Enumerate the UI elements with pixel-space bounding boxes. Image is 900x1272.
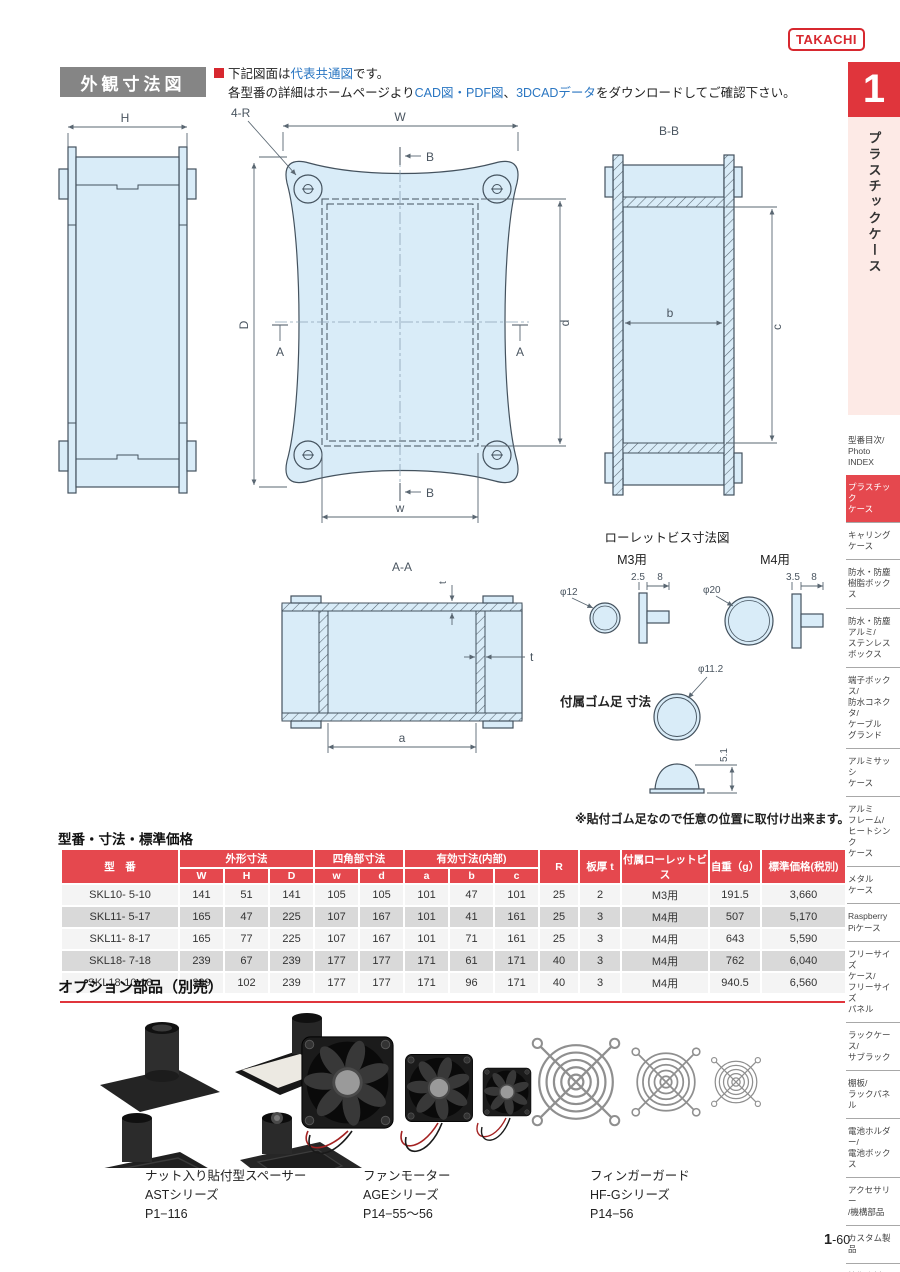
spec-value-cell: 6,560: [761, 972, 846, 994]
spec-model-cell: SKL11- 5-17: [61, 906, 179, 928]
spec-value-cell: 171: [404, 950, 449, 972]
spec-value-cell: M4用: [621, 950, 709, 972]
corner-radius-label: 4-R: [231, 106, 251, 120]
m4-diameter-label: φ20: [703, 585, 721, 596]
page-number-rest: -60: [832, 1233, 850, 1247]
sidebar-item: フリーサイズ ケース/ フリーサイズ パネル: [846, 941, 900, 1022]
col-sub-D: D: [269, 868, 314, 884]
sidebar-item: アルミ フレーム/ ヒートシンク ケース: [846, 796, 900, 866]
spec-value-cell: 165: [179, 906, 224, 928]
header-note-line1: 下記図面は代表共通図です。: [214, 63, 389, 82]
spec-value-cell: 507: [709, 906, 761, 928]
section-bb-diagram: B-B b c: [605, 124, 784, 495]
col-weight: 自重（g）: [709, 849, 761, 884]
rubber-foot-diagram: 付属ゴム足 寸法 φ11.2 5.1: [560, 664, 737, 793]
spec-value-cell: 3: [579, 972, 621, 994]
spec-value-cell: 3: [579, 950, 621, 972]
spec-value-cell: 51: [224, 884, 269, 906]
col-sub-b: b: [449, 868, 494, 884]
dim-h-label: H: [121, 111, 130, 125]
spec-value-cell: M4用: [621, 972, 709, 994]
sidebar-item: カスタム製品: [846, 1225, 900, 1262]
options-divider: [60, 1001, 845, 1003]
spec-value-cell: 101: [404, 928, 449, 950]
m3-dim1-label: 2.5: [631, 572, 645, 583]
spec-model-cell: SKL10- 5-10: [61, 884, 179, 906]
finger-guards-image: [533, 1039, 761, 1125]
spec-value-cell: 6,040: [761, 950, 846, 972]
option-page-ref: P14−56: [590, 1205, 690, 1224]
col-radius: R: [539, 849, 579, 884]
knurled-screw-diagram: ローレットビス寸法図 M3用 M4用 φ12 2.5 8 φ20: [560, 531, 823, 648]
dim-d-label: d: [558, 320, 572, 327]
spec-value-cell: 940.5: [709, 972, 761, 994]
dim-c-label: c: [770, 324, 784, 330]
note1-em: 代表共通図: [291, 67, 354, 81]
category-strip-label: プラスチックケース: [865, 131, 884, 415]
col-screw: 付属ローレットビス: [621, 849, 709, 884]
logo-text: TAKACHI: [796, 32, 857, 47]
sidebar-item: アクセサリー /機構部品: [846, 1177, 900, 1225]
dim-b-label: b: [667, 306, 674, 320]
screw-diagram-title: ローレットビス寸法図: [604, 531, 729, 545]
spec-value-cell: 141: [179, 884, 224, 906]
spec-value-cell: M4用: [621, 906, 709, 928]
spec-value-cell: 239: [269, 972, 314, 994]
spec-row: SKL18- 7-182396723917717717161171403M4用7…: [61, 950, 846, 972]
spec-model-cell: SKL18- 7-18: [61, 950, 179, 972]
sidebar-item: 棚板/ ラックパネル: [846, 1070, 900, 1118]
sidebar-item: アルミサッシ ケース: [846, 748, 900, 796]
spec-value-cell: 177: [314, 972, 359, 994]
note1-post: です。: [353, 67, 389, 81]
spec-table: 型 番 外形寸法 四角部寸法 有効寸法(内部) R 板厚 t 付属ローレットビス…: [60, 848, 847, 995]
option-caption-spacer: ナット入り貼付型スペーサー ASTシリーズ P1−116: [145, 1167, 306, 1223]
spec-value-cell: 177: [359, 972, 404, 994]
spec-value-cell: 171: [404, 972, 449, 994]
section-bb-title: B-B: [659, 124, 679, 138]
fan-motors-image: [302, 1037, 531, 1153]
spec-value-cell: 225: [269, 928, 314, 950]
m3-diameter-label: φ12: [560, 587, 578, 598]
m3-label: M3用: [617, 553, 647, 567]
col-model: 型 番: [61, 849, 179, 884]
spec-row: SKL10- 5-101415114110510510147101252M3用1…: [61, 884, 846, 906]
option-page-ref: P1−116: [145, 1205, 306, 1224]
note2-post: をダウンロードしてご確認下さい。: [596, 86, 796, 100]
m3-dim2-label: 8: [657, 572, 663, 583]
col-sub-w: w: [314, 868, 359, 884]
option-name: フィンガーガード: [590, 1167, 690, 1186]
spec-row: SKL11- 5-171654722510716710141161253M4用5…: [61, 906, 846, 928]
spec-value-cell: 161: [494, 928, 539, 950]
note2-em1: CAD図・PDF図: [415, 86, 504, 100]
section-aa-diagram: A-A t t a: [282, 560, 534, 753]
spec-value-cell: 3: [579, 906, 621, 928]
spec-value-cell: 101: [404, 906, 449, 928]
red-square-bullet-icon: [214, 68, 224, 78]
spec-value-cell: 107: [314, 906, 359, 928]
col-sub-H: H: [224, 868, 269, 884]
col-outer-dims: 外形寸法: [179, 849, 314, 868]
option-series: HF-Gシリーズ: [590, 1186, 690, 1205]
spec-value-cell: 105: [359, 884, 404, 906]
option-name: ファンモーター: [363, 1167, 451, 1186]
page-number: 1-60: [824, 1232, 850, 1248]
rubber-foot-note: ※貼付ゴム足なので任意の位置に取付け出来ます。: [575, 810, 849, 827]
dim-W-label: W: [394, 110, 406, 124]
spec-value-cell: 25: [539, 884, 579, 906]
option-caption-fan: ファンモーター AGEシリーズ P14−55〜56: [363, 1167, 451, 1223]
spec-value-cell: 107: [314, 928, 359, 950]
spec-value-cell: 171: [494, 950, 539, 972]
option-name: ナット入り貼付型スペーサー: [145, 1167, 306, 1186]
sidebar-item: 型番目次/ Photo INDEX: [846, 428, 900, 475]
spec-row: SKL11- 8-171657722510716710171161253M4用6…: [61, 928, 846, 950]
m4-label: M4用: [760, 553, 790, 567]
col-sub-W: W: [179, 868, 224, 884]
category-strip: プラスチックケース: [848, 117, 900, 415]
sidebar-item: 防水・防塵 アルミ/ ステンレス ボックス: [846, 608, 900, 667]
header-note-line2: 各型番の詳細はホームページよりCAD図・PDF図、3DCADデータをダウンロード…: [228, 82, 796, 101]
spec-value-cell: 171: [494, 972, 539, 994]
col-sub-d: d: [359, 868, 404, 884]
spec-value-cell: 5,590: [761, 928, 846, 950]
spec-value-cell: 61: [449, 950, 494, 972]
spec-value-cell: 40: [539, 972, 579, 994]
col-thickness: 板厚 t: [579, 849, 621, 884]
option-page-ref: P14−55〜56: [363, 1205, 451, 1224]
spec-value-cell: 141: [269, 884, 314, 906]
section-mark-a-left: A: [276, 345, 284, 359]
note2-em2: 3DCADデータ: [516, 86, 596, 100]
options-title: オプション部品（別売）: [58, 976, 223, 997]
section-mark-b-top: B: [426, 150, 434, 164]
spec-value-cell: 177: [359, 950, 404, 972]
section-mark-b-bottom: B: [426, 486, 434, 500]
section-aa-title: A-A: [392, 560, 412, 574]
table-caption: 型番・寸法・標準価格: [58, 828, 193, 848]
option-product-images: [60, 1008, 845, 1168]
spec-value-cell: M4用: [621, 928, 709, 950]
option-series: ASTシリーズ: [145, 1186, 306, 1205]
spec-value-cell: 96: [449, 972, 494, 994]
sidebar-item: プラスチック ケース: [846, 475, 900, 522]
sidebar-item: メタル ケース: [846, 866, 900, 903]
spec-value-cell: 177: [314, 950, 359, 972]
sidebar-item: 技術資料/ 各種ご案内: [846, 1263, 900, 1272]
foot-height-label: 5.1: [719, 748, 730, 762]
spec-value-cell: 225: [269, 906, 314, 928]
m4-dim1-label: 3.5: [786, 572, 800, 583]
top-view-diagram: W w D d 4-R B B A A: [231, 106, 572, 523]
spec-value-cell: 239: [269, 950, 314, 972]
spec-model-cell: SKL11- 8-17: [61, 928, 179, 950]
note2-pre: 各型番の詳細はホームページより: [228, 86, 415, 100]
col-square-dims: 四角部寸法: [314, 849, 404, 868]
dim-a-label: a: [399, 731, 406, 745]
spec-value-cell: 101: [494, 884, 539, 906]
spec-value-cell: 40: [539, 950, 579, 972]
col-sub-a: a: [404, 868, 449, 884]
col-effective-dims: 有効寸法(内部): [404, 849, 539, 868]
spec-value-cell: 643: [709, 928, 761, 950]
sidebar-item: 電池ホルダー/ 電池ボックス: [846, 1118, 900, 1177]
section-title: 外観寸法図: [60, 67, 206, 97]
page-number-chapter: 1: [824, 1232, 832, 1248]
col-price: 標準価格(税別): [761, 849, 846, 884]
side-view-diagram: H: [59, 111, 196, 493]
sidebar-item: ラックケース/ サブラック: [846, 1022, 900, 1070]
spec-value-cell: 5,170: [761, 906, 846, 928]
spec-value-cell: 101: [404, 884, 449, 906]
col-sub-c: c: [494, 868, 539, 884]
spec-value-cell: 71: [449, 928, 494, 950]
note2-mid: 、: [504, 86, 517, 100]
dim-t-top-label: t: [438, 581, 449, 584]
foot-diameter-label: φ11.2: [698, 664, 724, 675]
catalog-page: TAKACHI 1 プラスチックケース 型番目次/ Photo INDEXプラス…: [0, 0, 900, 1272]
rubber-foot-label: 付属ゴム足 寸法: [560, 694, 651, 709]
dim-w-label: w: [395, 501, 405, 515]
sidebar-item: Raspberry Piケース: [846, 903, 900, 940]
option-caption-guard: フィンガーガード HF-Gシリーズ P14−56: [590, 1167, 690, 1223]
spec-value-cell: M3用: [621, 884, 709, 906]
spec-value-cell: 47: [224, 906, 269, 928]
chapter-number-tab: 1: [848, 62, 900, 117]
sidebar-item: キャリング ケース: [846, 522, 900, 559]
dimension-drawings: H: [55, 105, 845, 833]
spec-value-cell: 167: [359, 906, 404, 928]
spec-value-cell: 161: [494, 906, 539, 928]
spec-value-cell: 25: [539, 928, 579, 950]
spec-value-cell: 77: [224, 928, 269, 950]
m4-dim2-label: 8: [811, 572, 817, 583]
spec-value-cell: 47: [449, 884, 494, 906]
section-mark-a-right: A: [516, 345, 524, 359]
note1-pre: 下記図面は: [228, 67, 291, 81]
spec-value-cell: 167: [359, 928, 404, 950]
spec-value-cell: 102: [224, 972, 269, 994]
sidebar-index: 型番目次/ Photo INDEXプラスチック ケースキャリング ケース防水・防…: [846, 428, 900, 1272]
sidebar-item: 端子ボックス/ 防水コネクタ/ ケーブル グランド: [846, 667, 900, 748]
spec-value-cell: 762: [709, 950, 761, 972]
spec-value-cell: 165: [179, 928, 224, 950]
spec-value-cell: 191.5: [709, 884, 761, 906]
sidebar-item: 防水・防塵 樹脂ボックス: [846, 559, 900, 607]
option-series: AGEシリーズ: [363, 1186, 451, 1205]
spec-value-cell: 41: [449, 906, 494, 928]
spec-value-cell: 105: [314, 884, 359, 906]
dim-D-label: D: [237, 320, 251, 329]
spec-value-cell: 239: [179, 950, 224, 972]
spec-value-cell: 2: [579, 884, 621, 906]
spec-value-cell: 25: [539, 906, 579, 928]
spec-value-cell: 67: [224, 950, 269, 972]
dim-t-right-label: t: [530, 650, 534, 664]
spec-value-cell: 3: [579, 928, 621, 950]
takachi-logo: TAKACHI: [788, 28, 865, 51]
spec-value-cell: 3,660: [761, 884, 846, 906]
